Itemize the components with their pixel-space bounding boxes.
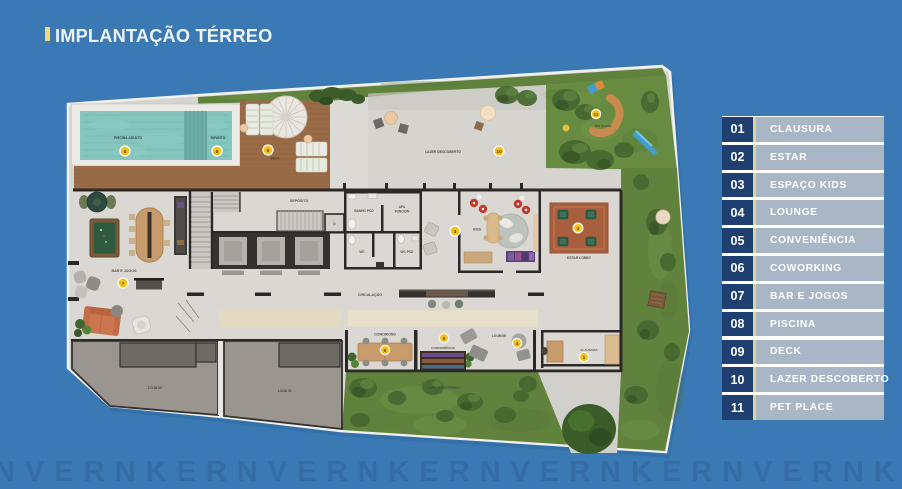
svg-text:11: 11 <box>593 112 598 118</box>
svg-text:10: 10 <box>496 149 502 155</box>
svg-text:8: 8 <box>216 149 219 155</box>
svg-text:BANHO PCD: BANHO PCD <box>354 209 374 213</box>
svg-text:2: 2 <box>577 226 580 232</box>
svg-text:ESTAR LOBBY: ESTAR LOBBY <box>567 256 592 260</box>
svg-text:LAZER DESCOBERTO: LAZER DESCOBERTO <box>425 150 461 154</box>
svg-text:6: 6 <box>384 348 387 354</box>
svg-text:LOJA 02: LOJA 02 <box>148 386 162 390</box>
svg-text:COWORKING: COWORKING <box>374 333 396 337</box>
svg-text:7: 7 <box>122 281 125 287</box>
svg-text:CONVENIÊNCIA: CONVENIÊNCIA <box>431 345 455 350</box>
svg-text:3: 3 <box>454 229 457 235</box>
svg-text:APA: APA <box>399 205 406 209</box>
svg-text:JARDIM EXTERNO: JARDIM EXTERNO <box>428 386 460 390</box>
svg-text:DEPÓSITO: DEPÓSITO <box>290 198 309 203</box>
svg-text:CIRCULAÇÃO: CIRCULAÇÃO <box>358 292 382 297</box>
svg-text:CLAUSURA: CLAUSURA <box>580 348 598 352</box>
svg-text:DECK: DECK <box>270 157 280 161</box>
svg-text:4: 4 <box>516 341 519 347</box>
svg-text:PET PLACE: PET PLACE <box>595 124 612 128</box>
svg-text:LOUNGE: LOUNGE <box>492 334 507 338</box>
svg-text:WC PCD: WC PCD <box>401 250 415 254</box>
svg-text:8: 8 <box>124 149 127 155</box>
svg-text:BAR E JOGOS: BAR E JOGOS <box>112 269 138 273</box>
svg-text:1: 1 <box>583 355 586 361</box>
svg-text:5: 5 <box>443 336 446 342</box>
svg-text:WC: WC <box>359 250 365 254</box>
svg-text:KIDS: KIDS <box>473 228 482 232</box>
svg-text:9: 9 <box>267 148 270 154</box>
svg-text:PISCINA ADULTO: PISCINA ADULTO <box>114 136 143 140</box>
svg-text:LOJA 01: LOJA 01 <box>278 389 292 393</box>
svg-text:FUNCION: FUNCION <box>395 210 410 214</box>
svg-text:INFANTO: INFANTO <box>211 136 226 140</box>
